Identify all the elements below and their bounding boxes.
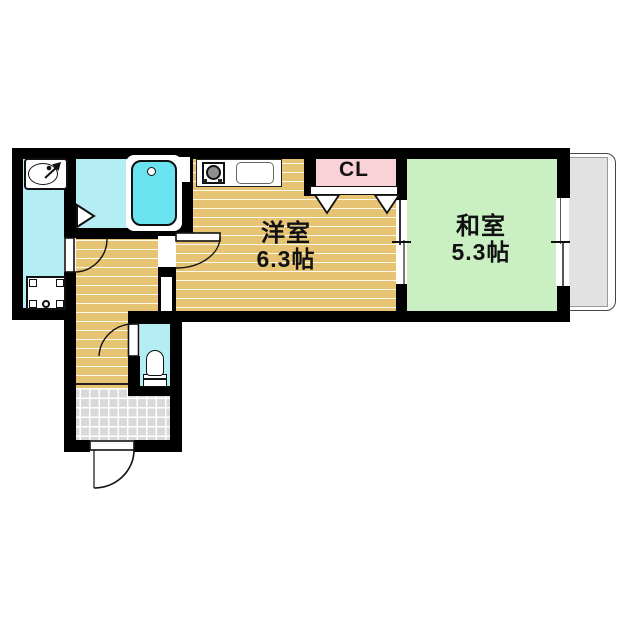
washing-machine-pan-icon bbox=[42, 300, 50, 308]
washroom-door-opening bbox=[64, 238, 76, 272]
western-room-label: 洋室 bbox=[226, 221, 346, 246]
balcony-window-icon bbox=[551, 241, 570, 243]
washing-machine-pan-icon bbox=[56, 300, 64, 308]
japanese-room-size: 5.3帖 bbox=[421, 240, 541, 264]
wash-basin-icon bbox=[28, 163, 58, 185]
wall bbox=[128, 386, 182, 396]
balcony-window-icon bbox=[560, 198, 562, 244]
western-room-door-opening bbox=[158, 236, 176, 267]
closet-door-track bbox=[310, 186, 398, 195]
washing-machine-pan-icon bbox=[29, 279, 37, 287]
floorplan-canvas: 洋室 6.3帖 和室 5.3帖 CL bbox=[0, 0, 640, 640]
sliding-partition-icon bbox=[399, 200, 401, 245]
entrance-door-opening bbox=[90, 440, 134, 452]
sliding-partition-icon bbox=[403, 240, 405, 284]
wall bbox=[128, 311, 570, 322]
kitchen-stove-icon bbox=[203, 179, 207, 183]
wall bbox=[170, 311, 182, 452]
kitchen-stove-icon bbox=[206, 165, 221, 180]
wall bbox=[64, 319, 76, 452]
wall bbox=[12, 148, 568, 159]
washing-machine-pan-icon bbox=[56, 279, 64, 287]
western-room-size: 6.3帖 bbox=[226, 247, 346, 271]
sliding-partition-icon bbox=[392, 241, 411, 243]
balcony-window-icon bbox=[562, 241, 564, 286]
washing-machine-pan-icon bbox=[29, 300, 37, 308]
kitchen-sink bbox=[236, 162, 274, 184]
wall bbox=[12, 148, 23, 318]
wall bbox=[557, 286, 570, 322]
toilet-door-opening bbox=[128, 324, 140, 356]
pipe-space bbox=[161, 277, 172, 311]
wall bbox=[396, 284, 407, 322]
closet-label: CL bbox=[310, 159, 398, 181]
wall bbox=[557, 148, 570, 198]
toilet-icon bbox=[146, 350, 164, 376]
entrance-step-line bbox=[72, 383, 130, 385]
toilet-icon bbox=[143, 378, 167, 380]
bathtub-drain-icon bbox=[147, 167, 156, 176]
japanese-room-label: 和室 bbox=[421, 214, 541, 239]
kitchen-stove-icon bbox=[218, 179, 222, 183]
